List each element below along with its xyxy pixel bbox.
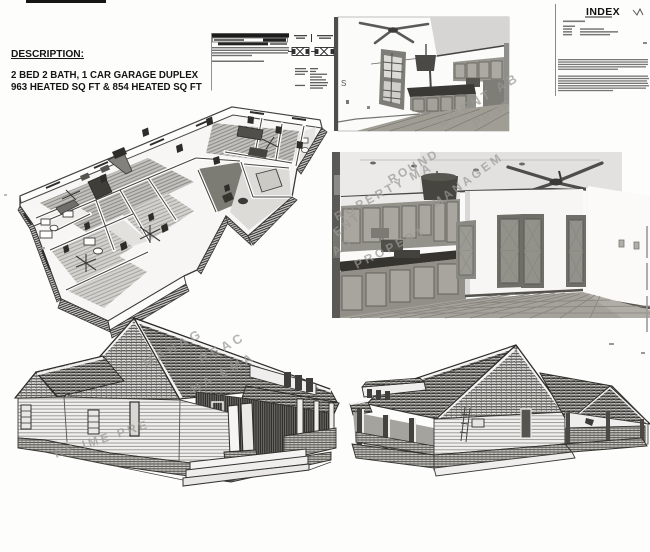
svg-text:2 BED 2 BATH, 1 CAR GARAGE DUP: 2 BED 2 BATH, 1 CAR GARAGE DUPLEX xyxy=(11,70,199,81)
svg-text:963 HEATED SQ FT & 854 HEATED: 963 HEATED SQ FT & 854 HEATED SQ FT xyxy=(11,82,202,93)
svg-text:INDEX: INDEX xyxy=(586,6,620,18)
svg-text:DESCRIPTION:: DESCRIPTION: xyxy=(11,49,84,60)
svg-text:S: S xyxy=(341,79,346,88)
